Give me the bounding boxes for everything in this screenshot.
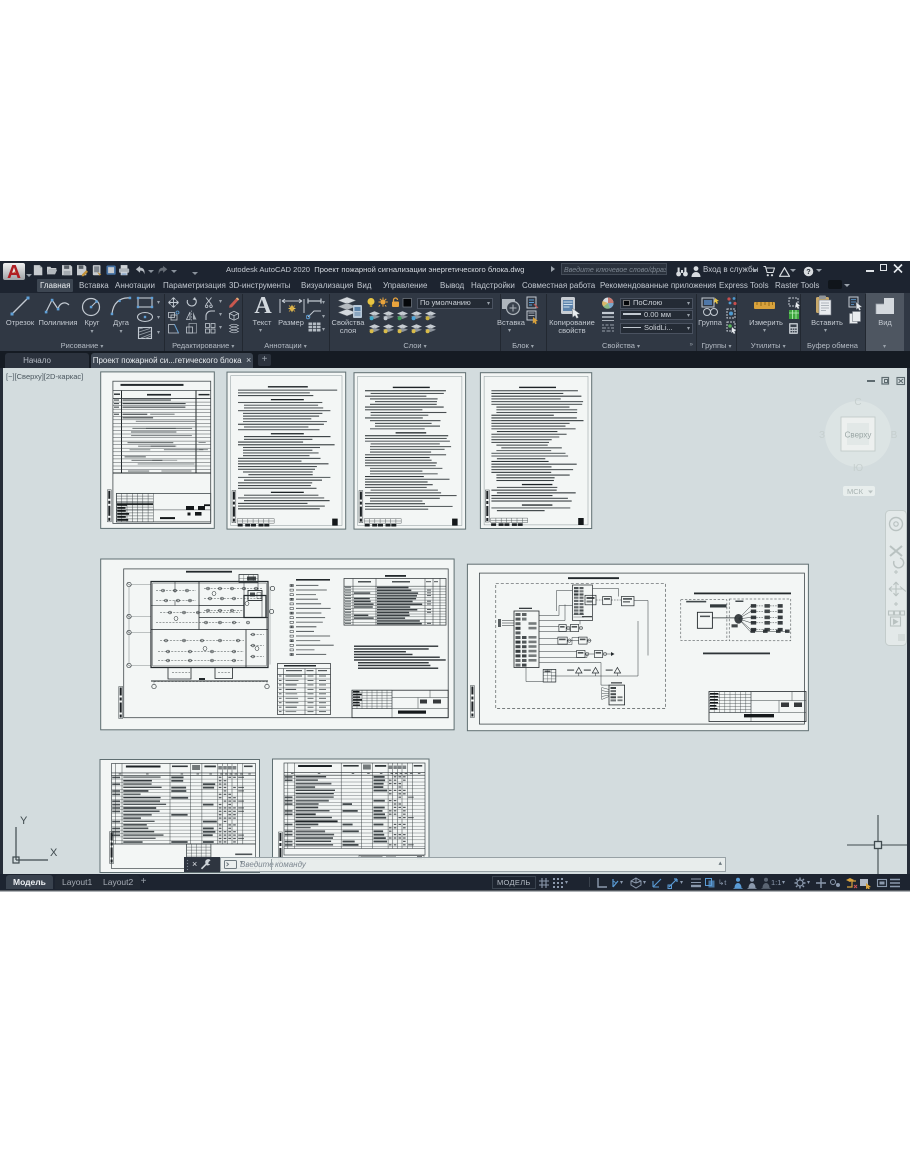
svg-text:?: ? [806, 267, 811, 276]
svg-text:X: X [50, 847, 58, 859]
svg-text:Y: Y [20, 815, 28, 827]
svg-text:С: С [854, 397, 861, 408]
svg-text:В: В [891, 430, 898, 441]
svg-text:МСК: МСК [847, 487, 864, 496]
svg-text:Сверху: Сверху [845, 431, 872, 440]
svg-text:З: З [819, 430, 825, 441]
svg-text:Ю: Ю [853, 463, 863, 474]
